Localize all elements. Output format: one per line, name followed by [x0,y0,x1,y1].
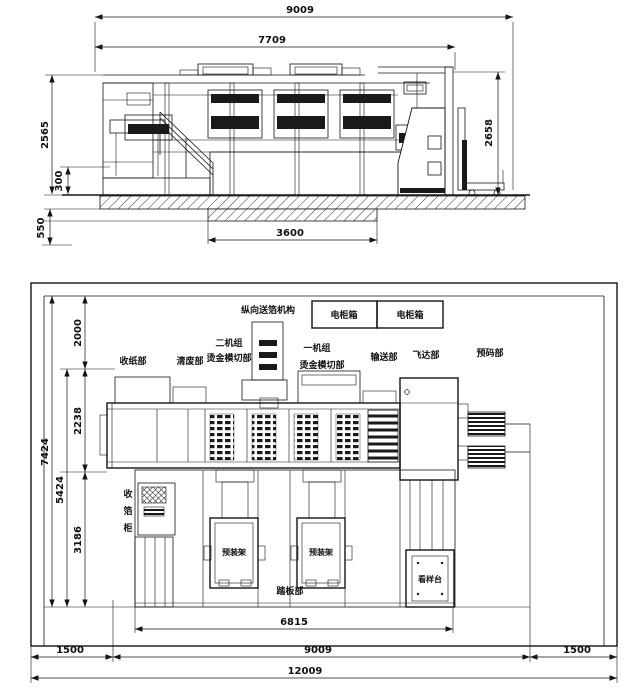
plan-machine-body [100,403,400,468]
foil-cabinet: 收 箔 柜 [122,483,175,607]
elevation-machine [103,64,504,196]
dim-elev-step-height: 300 [54,167,110,194]
feeder-unit [400,378,468,480]
electric-cabinet-left: 电柜箱 [312,301,377,328]
label-preload-rack-left: 预装架 [222,547,246,557]
plan-view: 7424 5424 2000 2238 3186 电柜箱 电柜箱 [31,283,617,683]
dim-text-7709: 7709 [258,35,286,46]
sample-table: 看样台 [406,480,454,607]
dim-plan-bottom-chain: 1500 9009 1500 12009 [31,600,617,683]
dim-plan-machine-zone-depth: 5424 [55,369,67,607]
prestack-combs [455,412,530,662]
transport-comb [368,410,398,462]
label-electric-cabinet-left: 电柜箱 [330,309,357,321]
preload-rack-right: 预装架 [291,470,352,588]
elevation-module-3 [340,90,394,138]
dim-plan-platform-width: 6815 [135,607,453,633]
dim-text-1500-right: 1500 [563,645,591,656]
dim-plan-room-depth: 7424 [40,296,52,607]
label-unit1-subtitle: 烫金模切部 [299,359,344,371]
label-transport-section: 输送部 [370,351,397,363]
dim-plan-body-depth: 2238 [73,369,85,472]
label-unit1-title: 一机组 [303,342,330,354]
dim-text-5424: 5424 [55,476,66,504]
dim-elev-frame-width: 7709 [95,35,455,70]
label-electric-cabinet-right: 电柜箱 [396,309,423,321]
plan-top-attachments [115,371,396,403]
dim-text-2000: 2000 [73,319,84,347]
dim-text-9009-elev: 9009 [286,5,314,16]
elevation-view: 9009 7709 2565 300 550 [36,5,530,245]
dim-text-12009: 12009 [288,666,323,677]
dim-text-300: 300 [54,171,65,192]
dim-elev-pit-width: 3600 [208,221,377,244]
elevation-module-2 [274,90,328,138]
drawing-canvas: 9009 7709 2565 300 550 [0,0,630,692]
dim-text-2238: 2238 [73,407,84,435]
elevation-module-1 [208,90,262,138]
label-prestack-section: 预码部 [476,347,503,359]
dim-elev-pit-depth: 550 [36,209,100,245]
dim-text-6815: 6815 [280,617,308,628]
label-feeder-section: 飞达部 [412,349,439,361]
label-stripping-section: 清废部 [176,355,203,367]
plan-room-outline [31,283,617,646]
dim-text-2565: 2565 [40,121,51,149]
dim-text-550: 550 [36,218,47,239]
label-foil-cabinet-char-3: 柜 [122,522,132,534]
label-preload-rack-right: 预装架 [309,547,333,557]
dim-text-1500-left: 1500 [56,645,84,656]
dim-elev-right-height: 2658 [453,72,505,195]
preload-rack-left: 预装架 [204,470,265,588]
engineering-drawing: 9009 7709 2565 300 550 [0,0,630,692]
label-sample-table: 看样台 [417,574,442,584]
label-delivery-section: 收纸部 [119,355,146,367]
label-unit2-subtitle: 烫金模切部 [206,352,251,364]
dim-text-7424: 7424 [40,438,51,466]
dim-text-9009-plan: 9009 [304,645,332,656]
label-unit2-title: 二机组 [215,337,242,349]
label-footboard-section: 踏板部 [276,585,303,597]
label-foil-cabinet-char-2: 箔 [122,505,132,517]
dim-elev-left-height: 2565 [40,75,103,195]
dim-text-2658: 2658 [484,119,495,147]
dim-text-3600: 3600 [276,228,304,239]
dim-text-3186: 3186 [73,526,84,554]
dim-plan-rear-clearance: 2000 [73,296,85,369]
electric-cabinet-right: 电柜箱 [377,301,443,328]
footboard-platform: 踏板部 [135,470,455,607]
label-foil-feed-mechanism: 纵向送箔机构 [241,304,295,316]
elevation-ground [44,195,530,221]
label-foil-cabinet-char-1: 收 [123,488,132,500]
